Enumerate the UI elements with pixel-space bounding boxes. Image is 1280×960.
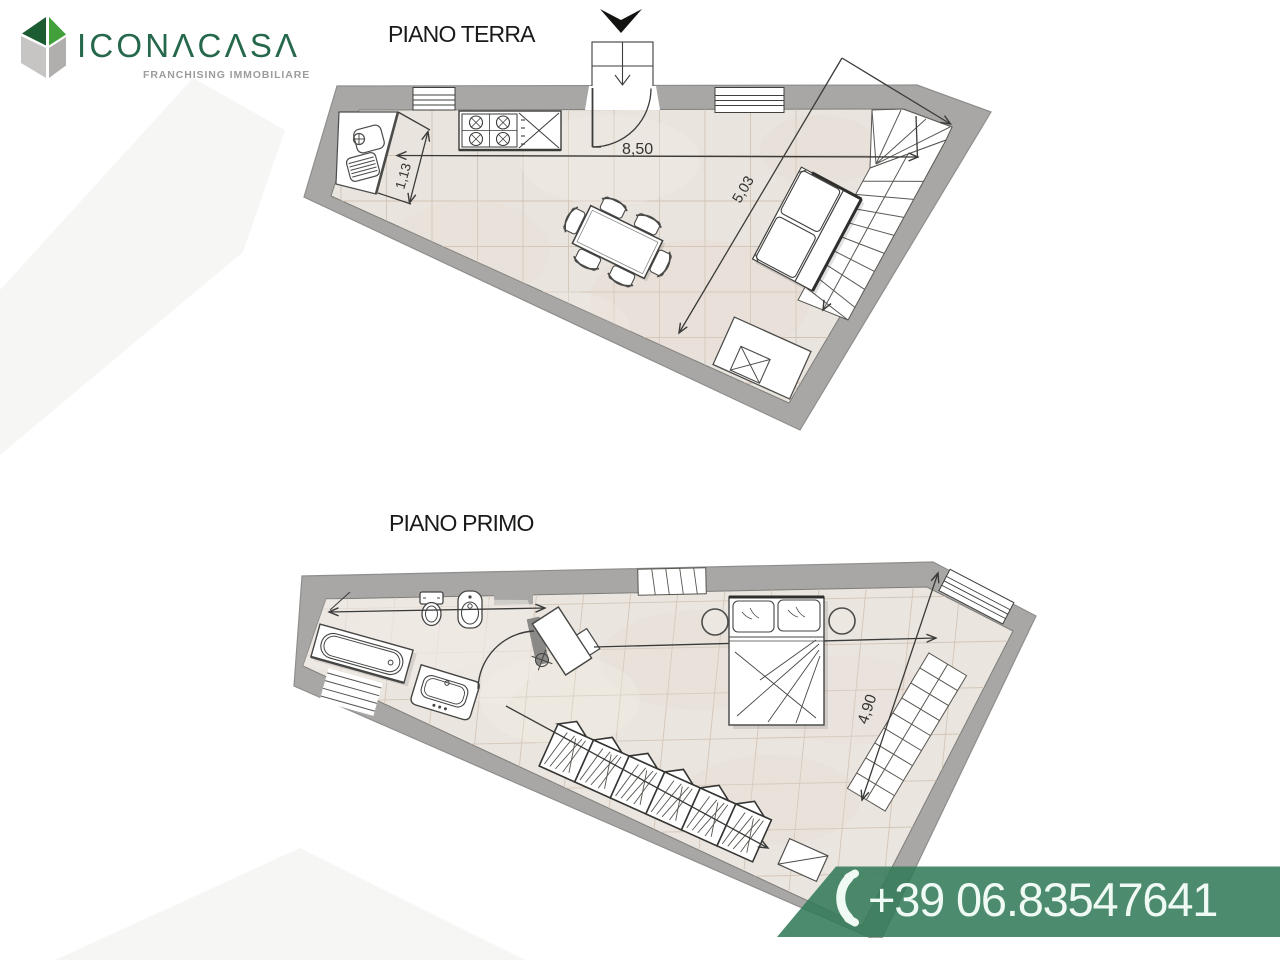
svg-text:8,50: 8,50: [622, 141, 653, 158]
svg-text:PIANO PRIMO: PIANO PRIMO: [389, 510, 534, 536]
svg-text:+39 06.83547641: +39 06.83547641: [868, 873, 1217, 926]
svg-text:FRANCHISING IMMOBILIARE: FRANCHISING IMMOBILIARE: [143, 69, 310, 81]
svg-text:PIANO TERRA: PIANO TERRA: [388, 21, 536, 47]
svg-text:ICONΛCΛSΛ: ICONΛCΛSΛ: [77, 27, 300, 64]
